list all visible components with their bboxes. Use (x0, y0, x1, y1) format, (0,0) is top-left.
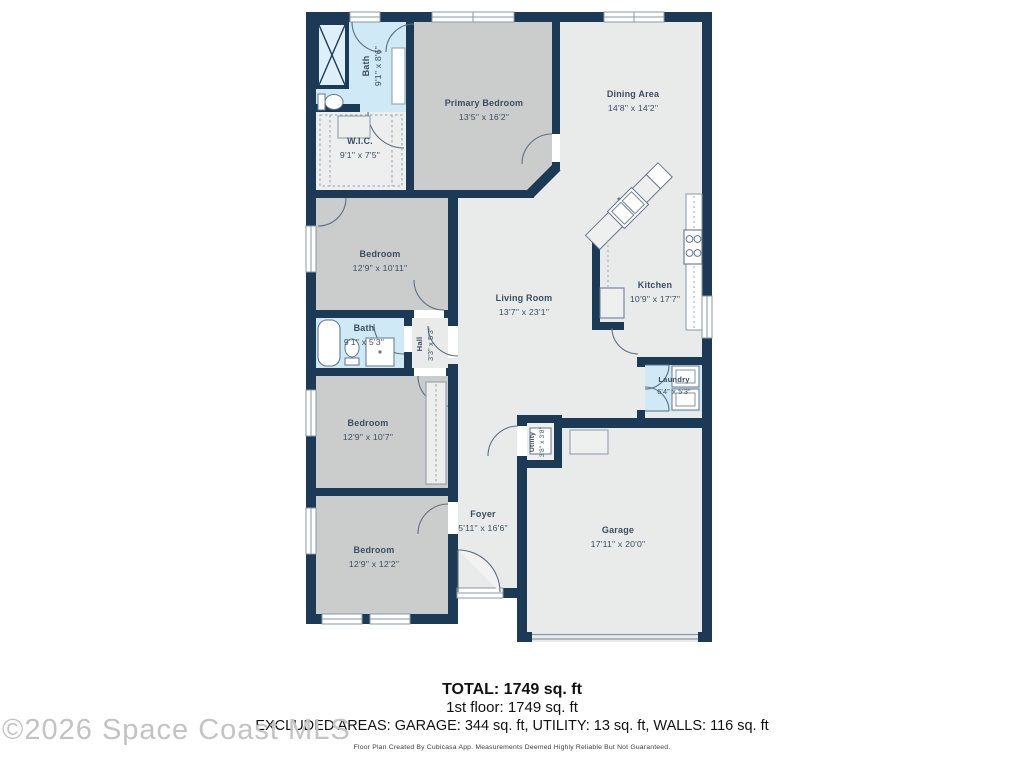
svg-text:12'9" x 10'11": 12'9" x 10'11" (353, 263, 408, 273)
room-bedroom4-floor (316, 496, 448, 614)
svg-text:9'1" x 7'5": 9'1" x 7'5" (340, 150, 380, 160)
mls-watermark: ©2026 Space Coast MLS (2, 714, 351, 747)
svg-text:12'9" x 12'2": 12'9" x 12'2" (349, 559, 399, 569)
svg-text:Hall: Hall (415, 337, 424, 352)
svg-text:Laundry: Laundry (658, 375, 690, 384)
svg-text:3'3" x 5'3": 3'3" x 5'3" (426, 327, 435, 361)
svg-text:Bedroom: Bedroom (354, 545, 395, 555)
svg-text:Living Room: Living Room (496, 293, 553, 303)
bathtub (318, 320, 340, 366)
svg-text:9'1" x 5'3": 9'1" x 5'3" (344, 337, 384, 347)
toilet2-tank (345, 358, 359, 365)
total-area: TOTAL: 1749 sq. ft (0, 680, 1024, 699)
svg-text:W.I.C.: W.I.C. (347, 136, 373, 146)
svg-text:Bedroom: Bedroom (348, 418, 389, 428)
svg-text:Bedroom: Bedroom (360, 249, 401, 259)
toilet-bowl (325, 95, 343, 110)
svg-text:10'9" x 17'7": 10'9" x 17'7" (630, 294, 680, 304)
svg-text:Bath: Bath (354, 323, 375, 333)
svg-text:5'11" x 16'6": 5'11" x 16'6" (458, 523, 508, 533)
svg-text:13'5" x 16'2": 13'5" x 16'2" (459, 112, 509, 122)
svg-text:Foyer: Foyer (470, 509, 496, 519)
floor-plan-drawing: Bath 9'1" x 8'6" W.I.C. 9'1" x 7'5" Prim… (0, 0, 1024, 768)
svg-text:Dining Area: Dining Area (607, 89, 660, 99)
svg-text:Garage: Garage (602, 525, 634, 535)
floor-plan-page: Bath 9'1" x 8'6" W.I.C. 9'1" x 7'5" Prim… (0, 0, 1024, 768)
wic-dresser (338, 116, 370, 138)
garage-equipment (570, 430, 608, 454)
toilet-tank (318, 94, 325, 110)
svg-text:9'1" x 8'6": 9'1" x 8'6" (373, 46, 383, 86)
svg-text:Utility: Utility (529, 432, 536, 452)
svg-text:3'8" x 3'8": 3'8" x 3'8" (539, 427, 546, 457)
refrigerator (600, 288, 624, 318)
svg-text:13'7" x 23'1": 13'7" x 23'1" (499, 307, 549, 317)
svg-text:Primary Bedroom: Primary Bedroom (445, 98, 524, 108)
svg-text:6'4" x 5'3": 6'4" x 5'3" (657, 387, 691, 396)
svg-text:Bath: Bath (361, 56, 371, 77)
svg-text:Kitchen: Kitchen (638, 280, 672, 290)
svg-text:14'8" x 14'2": 14'8" x 14'2" (608, 103, 658, 113)
stove (684, 230, 702, 264)
garage-door (532, 632, 698, 642)
svg-text:12'9" x 10'7": 12'9" x 10'7" (343, 432, 393, 442)
svg-text:17'11" x 20'0": 17'11" x 20'0" (591, 539, 646, 549)
bedroom3-closet (426, 382, 446, 484)
vanity (392, 48, 405, 104)
